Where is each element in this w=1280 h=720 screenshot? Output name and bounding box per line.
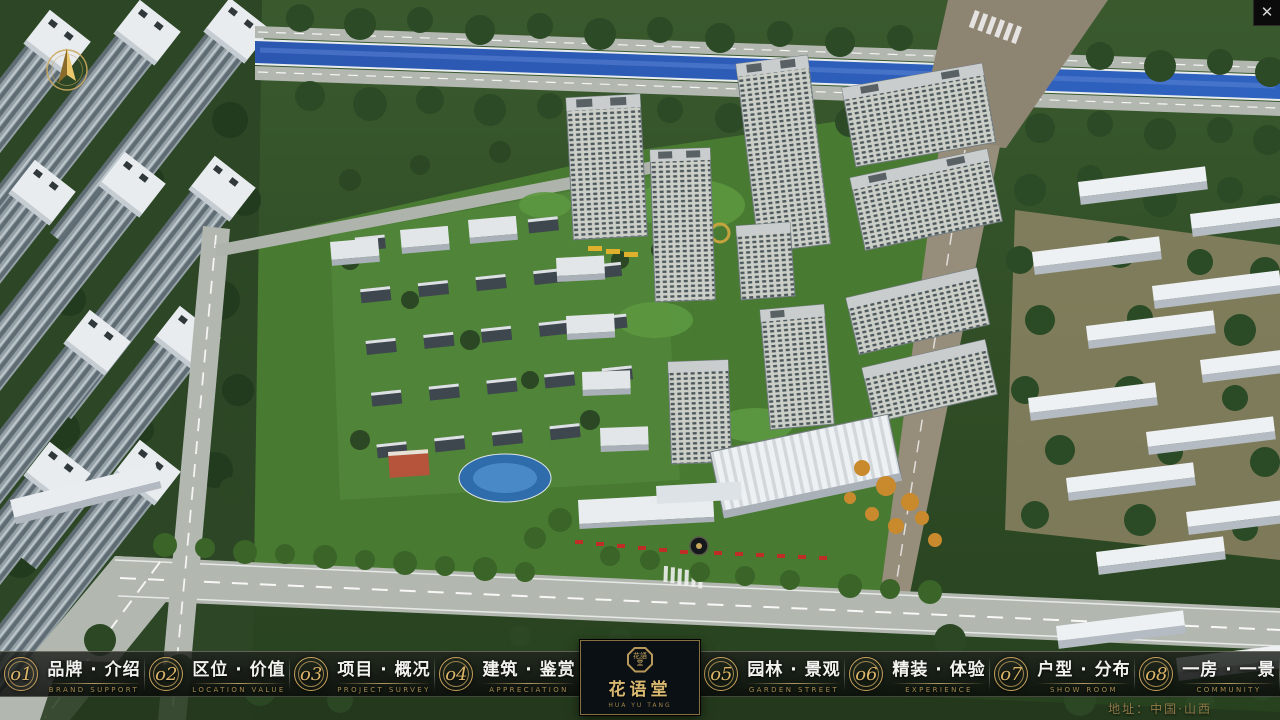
nav-labels: 项目 · 概况 PROJECT SURVEY [337, 655, 431, 694]
nav-number-badge: o5 [704, 657, 738, 691]
nav-label-zh: 品牌 · 介绍 [47, 655, 140, 680]
nav-item-floorplan-distribution[interactable]: o7 户型 · 分布 SHOW ROOM [990, 652, 1135, 696]
nav-item-decoration-experience[interactable]: o6 精装 · 体验 EXPERIENCE [845, 652, 990, 696]
nav-item-project-survey[interactable]: o3 项目 · 概况 PROJECT SURVEY [290, 652, 435, 696]
nav-label-en: GARDEN STREET [749, 686, 839, 694]
seal-text: 花語堂 [633, 653, 648, 667]
nav-labels: 精装 · 体验 EXPERIENCE [892, 655, 985, 694]
nav-label-zh: 精装 · 体验 [892, 655, 985, 680]
nav-label-zh: 区位 · 价值 [192, 655, 285, 680]
nav-number-badge: o2 [149, 657, 183, 691]
nav-labels: 一房 · 一景 COMMUNITY [1182, 655, 1275, 694]
nav-item-room-view[interactable]: o8 一房 · 一景 COMMUNITY [1135, 652, 1280, 696]
seal-inner: 花語堂 [629, 649, 651, 671]
nav-divider-line [747, 683, 840, 684]
nav-label-zh: 园林 · 景观 [747, 655, 840, 680]
seal-icon: 花語堂 [627, 647, 653, 673]
nav-number-badge: o8 [1139, 657, 1173, 691]
logo-title: 花语堂 [609, 675, 672, 700]
nav-number-badge: o4 [439, 657, 473, 691]
address-text: 地址：中国·山西 [1108, 700, 1212, 717]
bottom-nav-bar: o1 品牌 · 介绍 BRAND SUPPORT o2 区位 · 价值 LOCA… [0, 651, 1280, 697]
nav-divider-line [337, 683, 431, 684]
close-icon: ✕ [1261, 5, 1274, 20]
presentation-window: ✕ o1 品牌 · 介绍 BRAND SUPPORT o2 区位 · 价值 LO… [0, 0, 1280, 720]
nav-number-badge: o6 [849, 657, 883, 691]
nav-divider-line [192, 683, 285, 684]
close-button[interactable]: ✕ [1253, 0, 1280, 26]
nav-number-badge: o7 [994, 657, 1028, 691]
nav-divider-line [482, 683, 575, 684]
nav-item-brand-intro[interactable]: o1 品牌 · 介绍 BRAND SUPPORT [0, 652, 145, 696]
nav-label-zh: 项目 · 概况 [337, 655, 430, 680]
nav-label-en: APPRECIATION [489, 686, 569, 694]
nav-item-architecture[interactable]: o4 建筑 · 鉴赏 APPRECIATION [435, 652, 580, 696]
nav-labels: 区位 · 价值 LOCATION VALUE [192, 655, 285, 694]
nav-divider-line [47, 683, 140, 684]
nav-number-badge: o1 [4, 657, 38, 691]
nav-label-en: COMMUNITY [1196, 686, 1261, 694]
logo-subtitle: HUA YU TANG [608, 702, 671, 709]
nav-divider-line [1182, 683, 1275, 684]
nav-label-en: EXPERIENCE [905, 686, 973, 694]
nav-number-badge: o3 [294, 657, 328, 691]
nav-label-zh: 建筑 · 鉴赏 [482, 655, 575, 680]
nav-divider-line [1037, 683, 1130, 684]
site-map-render [0, 0, 1280, 720]
nav-label-zh: 一房 · 一景 [1182, 655, 1275, 680]
nav-label-en: SHOW ROOM [1050, 686, 1118, 694]
nav-item-location-value[interactable]: o2 区位 · 价值 LOCATION VALUE [145, 652, 290, 696]
logo-panel[interactable]: 花語堂 花语堂 HUA YU TANG [580, 640, 700, 715]
nav-label-en: BRAND SUPPORT [49, 686, 139, 694]
nav-labels: 园林 · 景观 GARDEN STREET [747, 655, 840, 694]
nav-divider-line [892, 683, 985, 684]
nav-item-garden-landscape[interactable]: o5 园林 · 景观 GARDEN STREET [700, 652, 845, 696]
pond [459, 454, 551, 502]
nav-label-zh: 户型 · 分布 [1037, 655, 1130, 680]
nav-label-en: LOCATION VALUE [192, 686, 285, 694]
nav-labels: 建筑 · 鉴赏 APPRECIATION [482, 655, 575, 694]
nav-labels: 品牌 · 介绍 BRAND SUPPORT [47, 655, 140, 694]
nav-labels: 户型 · 分布 SHOW ROOM [1037, 655, 1130, 694]
nav-label-en: PROJECT SURVEY [337, 686, 431, 694]
